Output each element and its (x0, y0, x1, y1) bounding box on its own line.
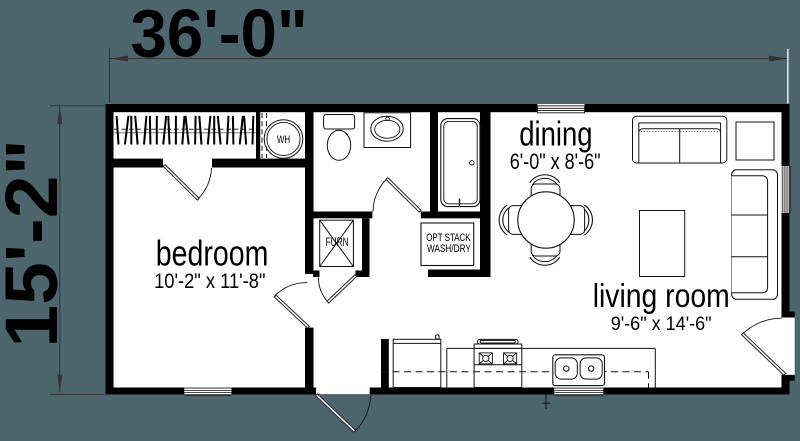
svg-text:WASH/DRY: WASH/DRY (427, 243, 471, 255)
svg-text:WH: WH (277, 134, 290, 147)
svg-text:15'-2": 15'-2" (0, 139, 74, 348)
svg-text:10'-2" x 11'-8": 10'-2" x 11'-8" (154, 270, 265, 294)
svg-text:bedroom: bedroom (156, 232, 269, 273)
svg-text:dining: dining (519, 114, 592, 153)
svg-text:living room: living room (593, 277, 730, 315)
svg-text:36'-0": 36'-0" (131, 0, 308, 72)
svg-text:FURN: FURN (326, 237, 349, 250)
svg-text:6'-0" x 8'-6": 6'-0" x 8'-6" (510, 150, 601, 174)
svg-text:9'-6" x 14'-6": 9'-6" x 14'-6" (611, 313, 712, 335)
